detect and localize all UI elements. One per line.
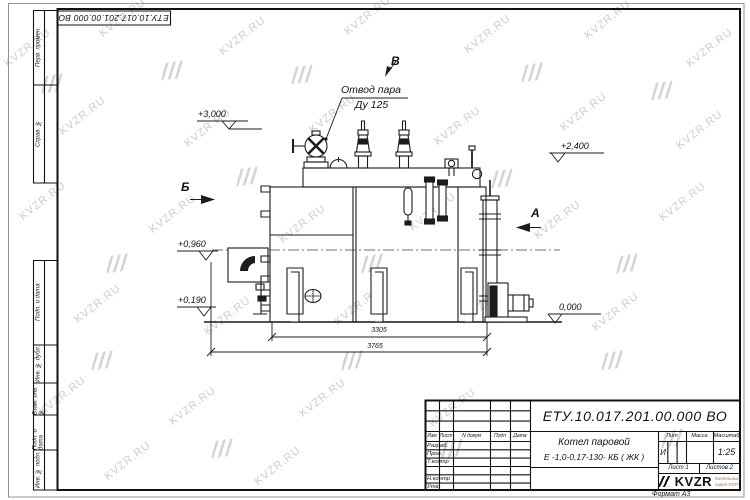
margin-label-inv-dubl: Инв. № дубл. <box>33 345 44 383</box>
safety-valve <box>355 121 371 168</box>
scale-header: Масштаб <box>713 431 740 441</box>
boiler-body <box>204 121 562 322</box>
steam-outlet-valve <box>293 131 328 168</box>
steam-outlet-callout-line1: Отвод пара <box>341 84 401 96</box>
titleblock-name-line2: Е -1,0-0,17-130- КБ ( ЖК ) <box>530 449 658 465</box>
row-label-razrab: Разраб. <box>427 443 448 449</box>
drawing-sheet: KVZR.RU KVZR.RU KVZR.RU KVZR.RU KVZR.RU … <box>0 0 750 500</box>
lit-header: Лит <box>658 431 686 441</box>
margin-label-inv-podl: Инв. № подл. <box>33 450 44 490</box>
safety-valve <box>396 121 412 168</box>
view-letter-v: В <box>391 54 400 68</box>
margin-label-perv-primen: Перв. примен. <box>33 10 44 85</box>
margin-label-podp-data-2: Подп. и дата <box>33 415 44 450</box>
elevation-plus-0960: +0,960 <box>178 239 206 249</box>
mass-header: Масса <box>686 431 713 441</box>
top-doc-number-stamp: ЕТУ.10.017.201.00.000 ВО <box>57 11 170 25</box>
company-logo: KVZR Котельный завод РЭП <box>658 473 740 490</box>
row-label-prov: Пров. <box>427 451 442 457</box>
col-header-data: Дата <box>510 431 530 441</box>
elevation-zero: 0,000 <box>559 302 582 312</box>
burner <box>228 248 268 314</box>
lit-value: И <box>658 441 668 463</box>
elevation-plus-3000: +3,000 <box>198 109 226 119</box>
kvzr-logo-text: KVZR <box>675 474 712 489</box>
col-header-ndoc: N докум <box>453 431 490 441</box>
elevation-plus-0190: +0,190 <box>178 295 206 305</box>
titleblock-doc-number: ЕТУ.10.017.201.00.000 ВО <box>530 400 740 431</box>
row-label-nkontr: Н.контр <box>427 476 450 482</box>
margin-label-sprav-no: Справ. № <box>33 85 44 183</box>
row-label-utv: Утв. <box>427 484 440 490</box>
fan-unit <box>485 283 533 322</box>
water-level-gauges <box>404 177 448 225</box>
sheet-number: Лист 1 <box>658 463 699 473</box>
scale-value: 1:25 <box>713 441 740 463</box>
margin-label-vzam-inv: Взам. инв. № <box>33 383 44 415</box>
elevation-plus-2400: +2,400 <box>561 141 589 151</box>
row-label-tkontr: Т.контр <box>427 459 449 465</box>
kvzr-logo-icon <box>658 476 672 487</box>
steam-outlet-callout-line2: Ду 125 <box>355 99 388 111</box>
margin-label-podp-data: Подп. и дата <box>33 260 44 345</box>
section-letter-a: А <box>531 206 540 220</box>
col-header-podp: Подп <box>490 431 510 441</box>
dimension-overall: 3765 <box>360 342 390 351</box>
kvzr-logo-subtitle-line2: завод РЭП <box>715 482 740 487</box>
sheets-total: Листов 2 <box>699 463 740 473</box>
dimension-inner: 3305 <box>364 326 394 335</box>
format-label: Формат А3 <box>652 491 690 498</box>
support-legs <box>287 268 477 322</box>
titleblock-name-line1: Котел паровой <box>530 434 658 450</box>
kvzr-logo-subtitle: Котельный завод РЭП <box>715 476 740 486</box>
section-letter-b: Б <box>181 180 190 194</box>
col-header-list: Лист <box>439 431 453 441</box>
col-header-izm: Изм <box>425 431 439 441</box>
